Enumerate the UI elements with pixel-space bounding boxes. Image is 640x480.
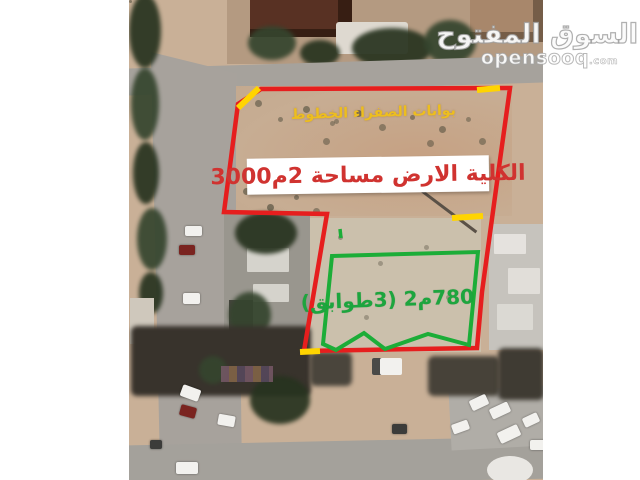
gate-marker	[300, 351, 320, 352]
opensooq-url-tld: .com	[589, 56, 618, 67]
total-area-label: 3000م2 مساحة الارض الكلية	[210, 160, 526, 189]
opensooq-watermark: السوق المفتوح opensooq.com	[436, 21, 638, 69]
listing-photo: الخطوط الصفراء بوابات 3000م2 مساحة الارض…	[0, 0, 640, 480]
gate-marker	[477, 88, 500, 90]
green-tick	[340, 229, 341, 238]
satellite-map: الخطوط الصفراء بوابات 3000م2 مساحة الارض…	[129, 0, 543, 480]
opensooq-url: opensooq.com	[436, 49, 618, 69]
boundary-overlay	[129, 0, 543, 480]
gate-marker	[452, 216, 483, 218]
gate-marker	[238, 88, 259, 108]
total-area-box: 3000م2 مساحة الارض الكلية	[247, 155, 489, 194]
opensooq-logo-arabic: السوق المفتوح	[436, 21, 638, 49]
